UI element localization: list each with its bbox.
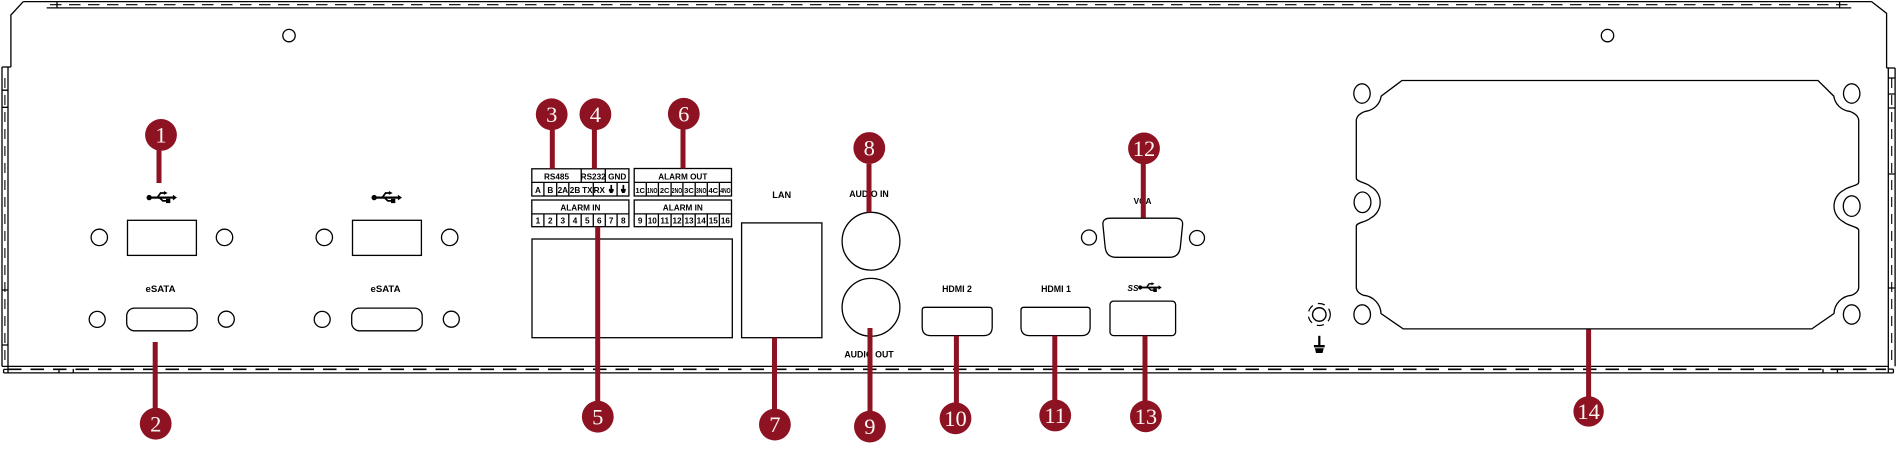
svg-text:12: 12	[672, 217, 682, 226]
svg-text:3C: 3C	[684, 186, 694, 195]
svg-text:16: 16	[721, 217, 731, 226]
svg-text:3: 3	[561, 217, 566, 226]
svg-text:1: 1	[155, 123, 166, 148]
svg-text:2: 2	[150, 411, 161, 436]
svg-text:6: 6	[678, 101, 689, 126]
svg-text:A: A	[535, 186, 541, 195]
svg-text:eSATA: eSATA	[370, 284, 400, 295]
svg-text:ALARM OUT: ALARM OUT	[658, 172, 707, 181]
svg-text:12: 12	[1133, 136, 1156, 161]
svg-text:TX: TX	[582, 186, 593, 195]
svg-text:eSATA: eSATA	[145, 284, 175, 295]
svg-text:7: 7	[769, 412, 780, 437]
svg-text:3NO: 3NO	[696, 186, 706, 195]
svg-text:GND: GND	[608, 172, 626, 181]
svg-text:ALARM IN: ALARM IN	[560, 204, 600, 213]
svg-text:4NO: 4NO	[720, 186, 730, 195]
svg-text:5: 5	[592, 404, 603, 429]
svg-text:2: 2	[548, 217, 553, 226]
svg-text:13: 13	[684, 217, 694, 226]
svg-text:RS485: RS485	[544, 172, 569, 181]
svg-text:1NO: 1NO	[647, 186, 657, 195]
svg-text:1C: 1C	[635, 186, 645, 195]
svg-text:14: 14	[1577, 399, 1600, 424]
svg-text:9: 9	[864, 414, 875, 439]
svg-text:4: 4	[573, 217, 578, 226]
svg-text:13: 13	[1135, 404, 1158, 429]
svg-text:10: 10	[944, 406, 967, 431]
svg-text:2C: 2C	[660, 186, 670, 195]
svg-text:11: 11	[1044, 403, 1066, 428]
svg-text:11: 11	[660, 217, 669, 226]
svg-text:15: 15	[709, 217, 719, 226]
svg-text:3: 3	[546, 102, 557, 127]
svg-text:8: 8	[621, 217, 626, 226]
svg-text:B: B	[547, 186, 553, 195]
svg-text:8: 8	[864, 136, 875, 161]
svg-text:5: 5	[585, 217, 590, 226]
svg-text:6: 6	[597, 217, 602, 226]
svg-text:4C: 4C	[708, 186, 718, 195]
svg-text:14: 14	[697, 217, 707, 226]
svg-text:ALARM IN: ALARM IN	[663, 204, 703, 213]
svg-text:1: 1	[536, 217, 541, 226]
svg-text:7: 7	[609, 217, 614, 226]
svg-text:2B: 2B	[570, 186, 581, 195]
svg-text:10: 10	[648, 217, 658, 226]
svg-text:HDMI 2: HDMI 2	[942, 284, 972, 294]
svg-text:HDMI 1: HDMI 1	[1041, 284, 1071, 294]
svg-text:2A: 2A	[558, 186, 569, 195]
svg-text:4: 4	[590, 102, 601, 127]
svg-text:LAN: LAN	[772, 190, 791, 200]
svg-text:RS232: RS232	[581, 172, 606, 181]
svg-text:2NO: 2NO	[672, 186, 682, 195]
svg-text:9: 9	[638, 217, 643, 226]
svg-text:SS: SS	[1128, 284, 1139, 293]
svg-text:RX: RX	[594, 186, 606, 195]
